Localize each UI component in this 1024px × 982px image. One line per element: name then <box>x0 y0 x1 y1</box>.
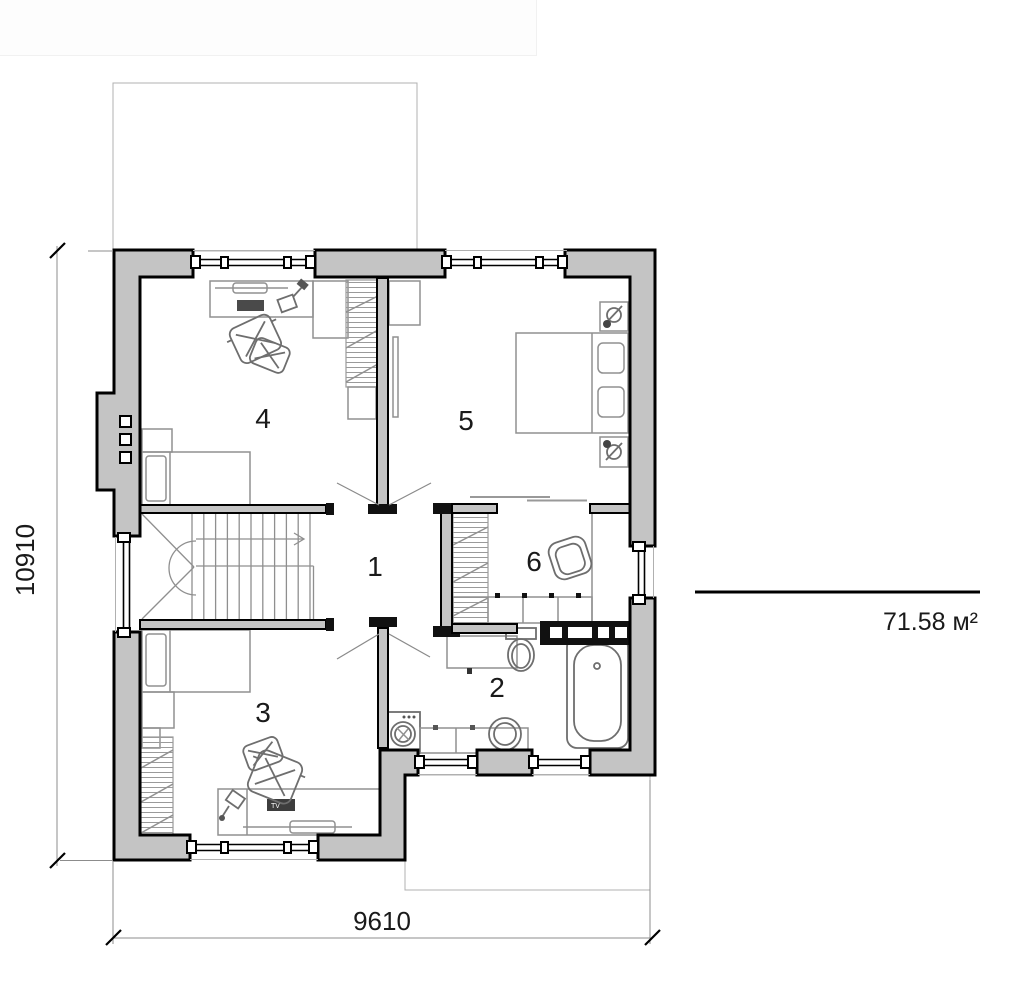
window <box>442 251 567 269</box>
sliding-door <box>470 497 587 501</box>
toilet <box>506 628 536 671</box>
room-label-1: 1 <box>367 551 383 582</box>
room-label-2: 2 <box>489 672 505 703</box>
room-6-furniture <box>453 508 594 623</box>
wall-stairs-bottom <box>140 620 326 629</box>
dimension-height: 10910 <box>10 243 113 868</box>
chimney-flues <box>120 416 131 463</box>
wall-top-right <box>565 250 655 546</box>
window <box>116 533 131 637</box>
roof-outline <box>113 83 417 251</box>
wall-top-left <box>97 250 193 536</box>
wall-closet-bottom <box>452 624 517 633</box>
interior-walls <box>140 278 630 748</box>
window <box>415 756 477 775</box>
bed <box>142 630 250 748</box>
desk <box>210 278 348 338</box>
window <box>529 756 590 775</box>
desk: TV <box>218 789 380 835</box>
wall-bath-bottom <box>477 750 532 775</box>
room-label-3: 3 <box>255 697 271 728</box>
wall-top-middle <box>315 250 445 277</box>
stair-direction-arrow <box>196 533 304 545</box>
wall-stairs-top <box>140 505 326 513</box>
window <box>633 542 654 604</box>
wall-closet-top-left <box>452 504 497 513</box>
nightstand <box>600 302 628 331</box>
wardrobe <box>346 280 378 419</box>
wall-closet-top-right <box>590 504 630 513</box>
cabinet <box>447 636 517 674</box>
desk-lamp-icon <box>219 790 245 821</box>
room-4-furniture <box>142 278 348 505</box>
wall-room3-bath <box>378 628 388 748</box>
terrace-outline <box>405 775 650 890</box>
room-label-4: 4 <box>255 403 271 434</box>
bed <box>142 429 250 505</box>
wardrobe <box>453 511 488 623</box>
tv-label: TV <box>271 803 280 810</box>
dimension-height-label: 10910 <box>10 524 40 596</box>
wardrobe <box>141 737 173 835</box>
wall-bottom-middle <box>318 750 418 860</box>
total-area-label: 71.58 м² <box>883 608 978 636</box>
room-label-5: 5 <box>458 405 474 436</box>
armchair <box>546 534 594 582</box>
room-3-furniture: TV <box>141 630 380 835</box>
dresser <box>389 281 420 325</box>
bathroom-fixtures <box>386 628 628 756</box>
floor-plan-drawing: TV <box>0 0 1024 982</box>
desk-lamp-icon <box>277 278 308 312</box>
staircase <box>142 513 314 620</box>
window <box>187 841 318 860</box>
bathtub <box>567 628 628 748</box>
wall-hall-closet <box>441 508 452 629</box>
area-annotation: 71.58 м² <box>695 592 980 636</box>
mirror <box>393 337 398 417</box>
floor-plan: TV <box>0 0 1024 982</box>
nightstand <box>600 437 628 467</box>
dimension-width-label: 9610 <box>353 906 411 936</box>
window <box>191 251 315 269</box>
double-bed <box>516 333 628 433</box>
towel-radiator <box>540 621 630 645</box>
washing-machine <box>386 712 420 753</box>
keyboard <box>237 300 264 311</box>
wall-room4-room5 <box>377 278 388 506</box>
room-label-6: 6 <box>526 546 542 577</box>
